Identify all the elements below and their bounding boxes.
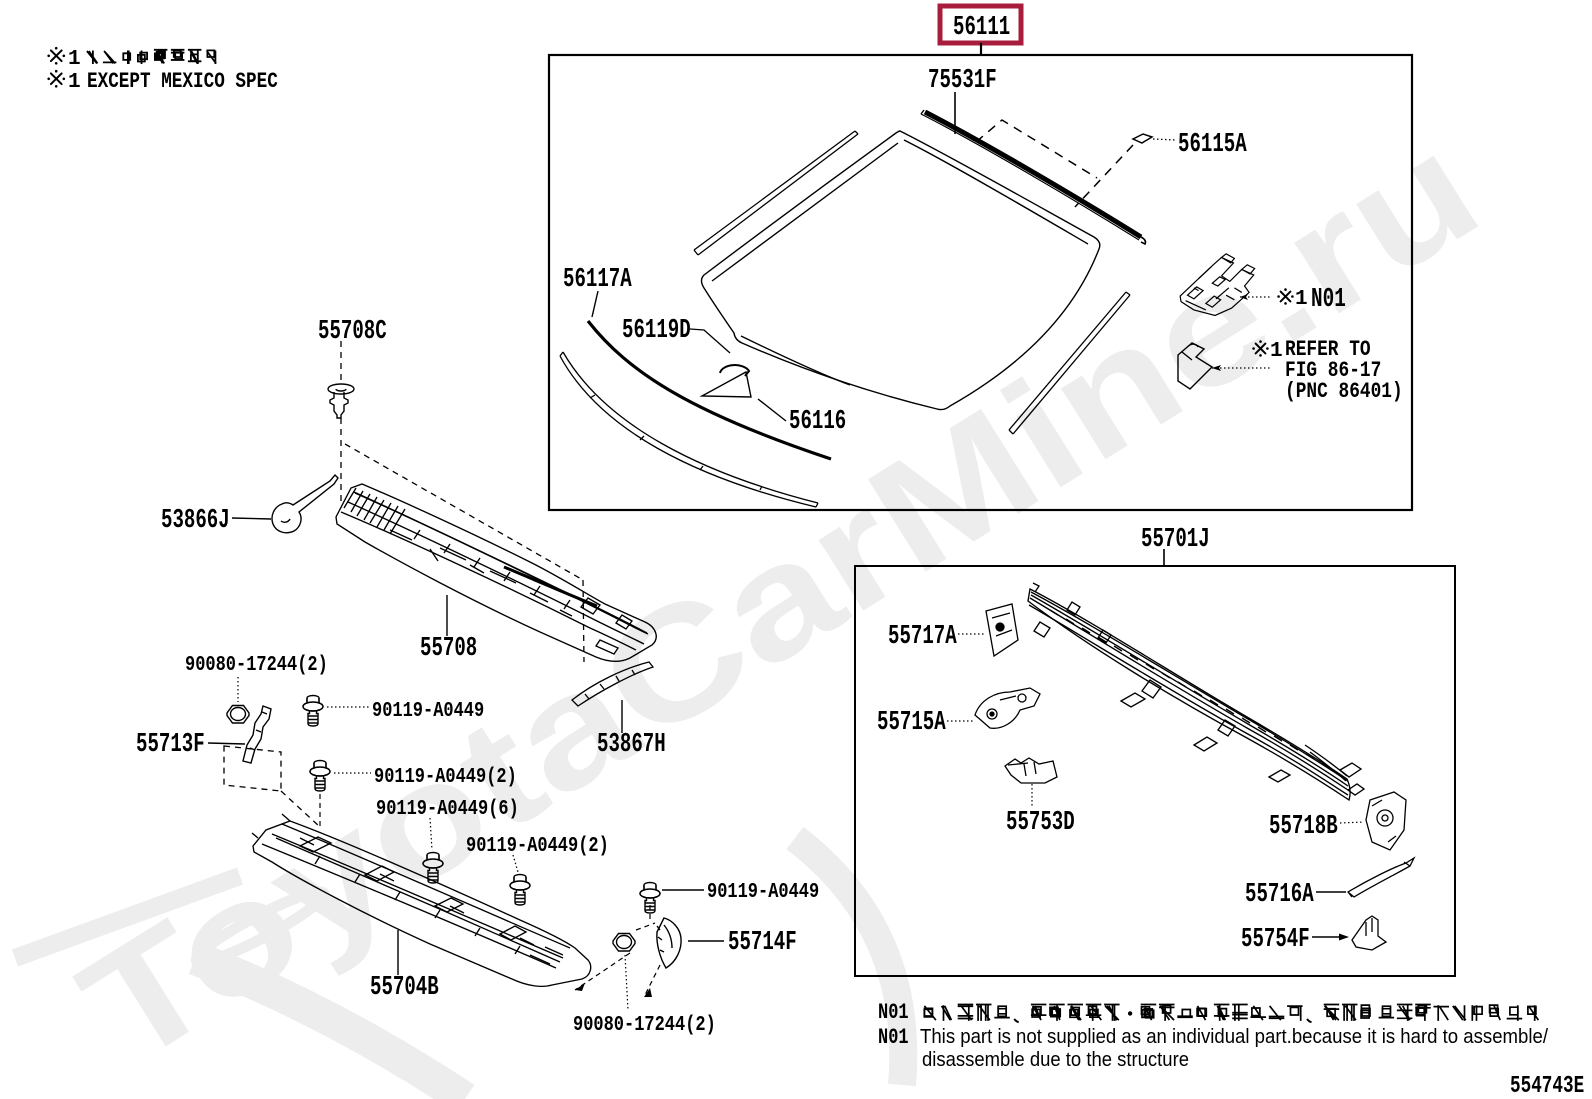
svg-text:N01: N01 [878, 1025, 909, 1050]
svg-text:55713F: 55713F [136, 730, 205, 760]
svg-text:(PNC 86401): (PNC 86401) [1285, 379, 1403, 404]
svg-text:55701J: 55701J [1141, 525, 1210, 555]
svg-text:1: 1 [68, 48, 81, 71]
svg-text:55715A: 55715A [877, 708, 946, 738]
svg-text:1: 1 [68, 71, 81, 94]
svg-text:disassemble due to the structu: disassemble due to the structure [922, 1049, 1189, 1071]
svg-text:55717A: 55717A [888, 622, 957, 652]
svg-text:55708C: 55708C [318, 317, 387, 347]
svg-text:This part is not supplied as a: This part is not supplied as an individu… [920, 1026, 1548, 1048]
svg-text:1: 1 [1270, 340, 1283, 363]
svg-text:90119-A0449(6): 90119-A0449(6) [376, 798, 519, 821]
svg-text:90119-A0449(2): 90119-A0449(2) [466, 835, 609, 858]
svg-text:554743E: 554743E [1510, 1073, 1584, 1099]
svg-text:56117A: 56117A [563, 265, 632, 295]
svg-text:55754F: 55754F [1241, 925, 1310, 955]
svg-text:N01: N01 [878, 1000, 909, 1025]
svg-text:75531F: 75531F [928, 66, 997, 96]
svg-text:56111: 56111 [953, 13, 1010, 43]
svg-text:55714F: 55714F [728, 928, 797, 958]
svg-text:56115A: 56115A [1178, 130, 1247, 160]
svg-text:90080-17244(2): 90080-17244(2) [573, 1014, 716, 1037]
svg-text:90119-A0449: 90119-A0449 [372, 700, 484, 723]
svg-text:EXCEPT MEXICO SPEC: EXCEPT MEXICO SPEC [87, 69, 278, 94]
svg-text:90119-A0449: 90119-A0449 [707, 881, 819, 904]
svg-text:N01: N01 [1311, 285, 1346, 315]
svg-text:53867H: 53867H [597, 730, 666, 760]
svg-text:90080-17244(2): 90080-17244(2) [185, 654, 328, 677]
svg-text:56116: 56116 [789, 407, 846, 437]
svg-text:1: 1 [1295, 288, 1308, 311]
svg-text:55704B: 55704B [370, 973, 439, 1003]
svg-text:55716A: 55716A [1245, 880, 1314, 910]
svg-text:53866J: 53866J [161, 506, 230, 536]
svg-text:56119D: 56119D [622, 316, 691, 346]
svg-text:55718B: 55718B [1269, 812, 1338, 842]
svg-text:90119-A0449(2): 90119-A0449(2) [374, 766, 517, 789]
svg-text:55708: 55708 [420, 634, 477, 664]
svg-text:55753D: 55753D [1006, 808, 1075, 838]
